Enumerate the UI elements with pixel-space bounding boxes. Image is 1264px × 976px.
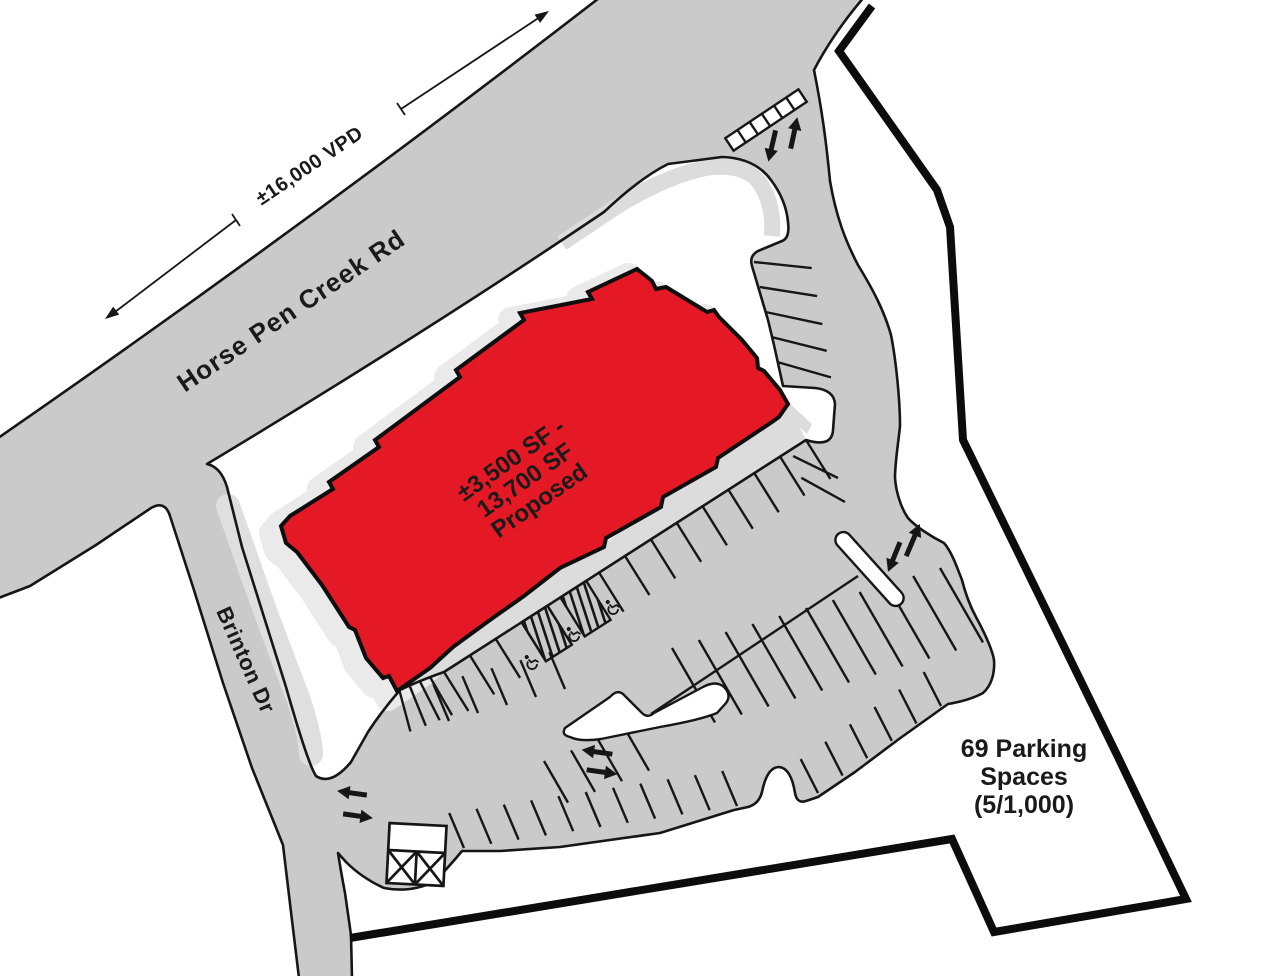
svg-text:Spaces: Spaces bbox=[980, 763, 1068, 791]
svg-text:(5/1,000): (5/1,000) bbox=[974, 791, 1074, 819]
svg-text:69 Parking: 69 Parking bbox=[961, 735, 1087, 763]
